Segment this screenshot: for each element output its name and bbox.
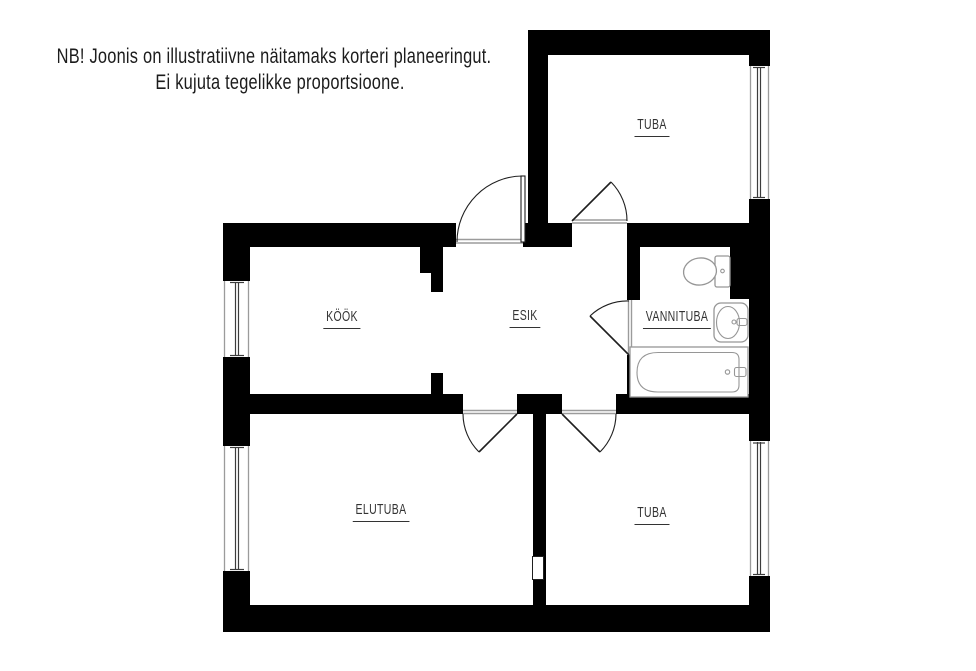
room-label-kook: KÖÖK xyxy=(323,309,360,329)
entrance-door xyxy=(456,176,525,243)
room-label-tuba-bottom: TUBA xyxy=(634,505,669,525)
sink-icon xyxy=(714,303,748,342)
room-label-vannituba: VANNITUBA xyxy=(643,309,711,329)
walls xyxy=(223,30,770,632)
floor-plan-drawing xyxy=(0,0,976,671)
window-tuba-bottom xyxy=(748,441,772,576)
toilet-icon xyxy=(682,256,730,287)
elutuba-door xyxy=(463,411,517,453)
floor-plan: NB! Joonis on illustratiivne näitamaks k… xyxy=(0,0,976,671)
tuba-bottom-door xyxy=(562,411,616,453)
room-label-esik: ESIK xyxy=(510,308,541,328)
tuba-top-door xyxy=(572,182,627,223)
wall-niche xyxy=(533,557,544,580)
vannituba-door xyxy=(590,300,632,355)
room-label-tuba-top: TUBA xyxy=(634,117,669,137)
bathtub-icon xyxy=(630,347,748,397)
disclaimer-line-1: NB! Joonis on illustratiivne näitamaks k… xyxy=(57,44,492,69)
window-tuba-top xyxy=(748,66,772,199)
window-elutuba xyxy=(222,446,251,571)
disclaimer-line-2: Ei kujuta tegelikke proportsioone. xyxy=(155,70,404,95)
room-label-elutuba: ELUTUBA xyxy=(353,502,409,522)
window-kook xyxy=(222,281,251,357)
